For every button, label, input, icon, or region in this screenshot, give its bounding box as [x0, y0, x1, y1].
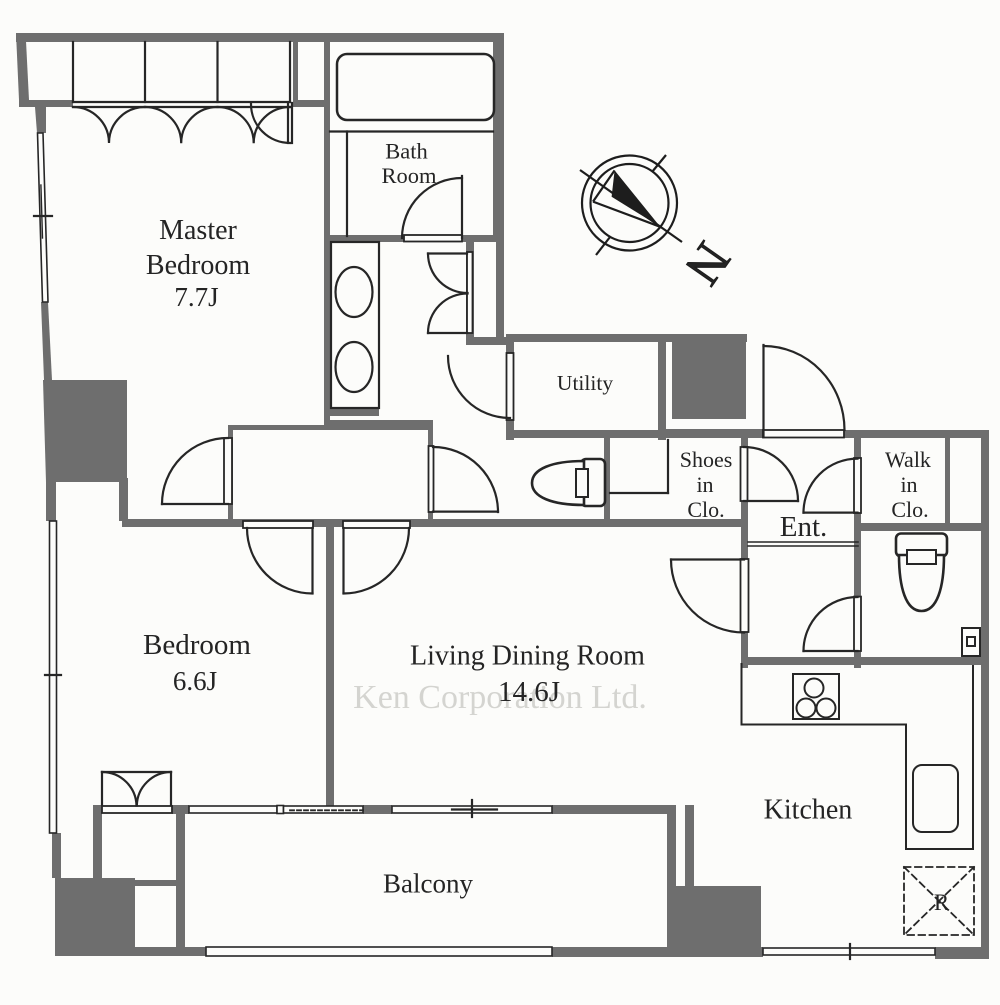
svg-text:Clo.: Clo.	[687, 497, 724, 522]
svg-text:Ent.: Ent.	[780, 511, 828, 543]
svg-text:Walk: Walk	[885, 447, 931, 472]
svg-text:R: R	[934, 890, 950, 915]
svg-text:7.7J: 7.7J	[174, 282, 218, 312]
svg-text:Utility: Utility	[557, 371, 613, 395]
svg-text:Balcony: Balcony	[383, 869, 473, 899]
svg-text:Room: Room	[381, 163, 437, 188]
svg-text:14.6J: 14.6J	[498, 676, 560, 708]
svg-text:Master: Master	[159, 215, 237, 246]
svg-text:Bath: Bath	[385, 139, 428, 164]
svg-text:Clo.: Clo.	[891, 497, 928, 522]
svg-text:Living Dining Room: Living Dining Room	[410, 641, 645, 672]
svg-text:Bedroom: Bedroom	[143, 629, 251, 661]
svg-text:Shoes: Shoes	[680, 447, 733, 472]
svg-text:in: in	[696, 472, 713, 497]
svg-text:in: in	[900, 472, 917, 497]
svg-text:Kitchen: Kitchen	[764, 795, 853, 826]
svg-text:Bedroom: Bedroom	[146, 250, 250, 281]
svg-text:6.6J: 6.6J	[173, 666, 217, 696]
